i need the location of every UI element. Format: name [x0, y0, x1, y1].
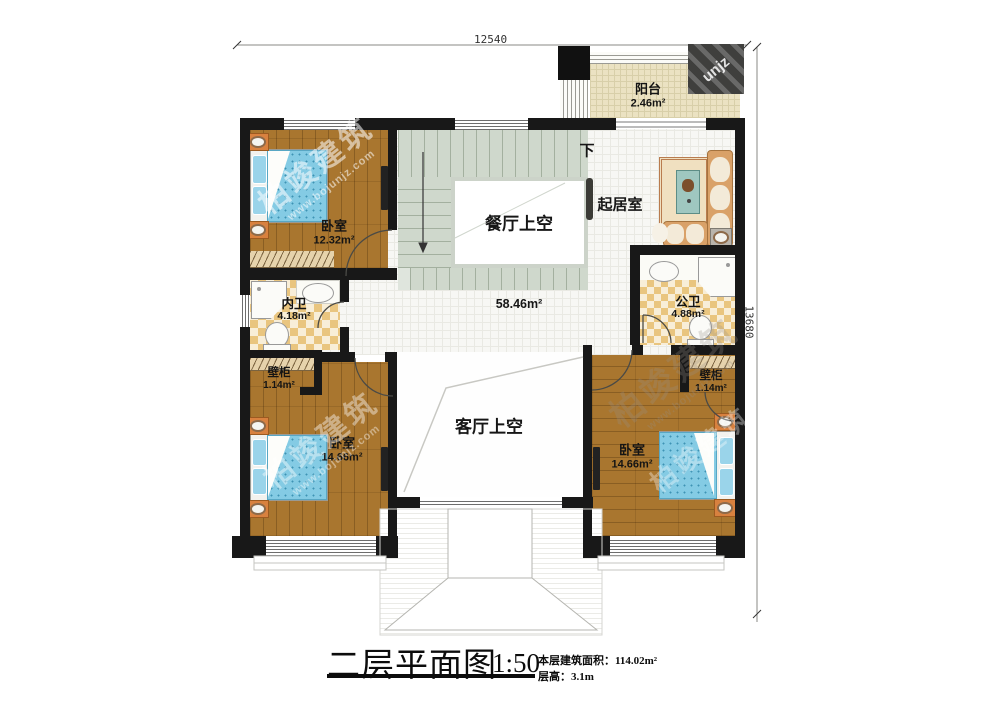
- room-name: 壁柜: [695, 370, 727, 383]
- room-area: 12.32m²: [314, 234, 355, 246]
- title-underline: [327, 674, 535, 678]
- shower-drain-icon: [257, 287, 261, 291]
- nightstand: [247, 500, 269, 518]
- wall-segment: [300, 387, 322, 395]
- balcony-railing-left: [560, 80, 588, 118]
- pillow: [719, 437, 734, 465]
- wall-segment: [240, 327, 250, 558]
- nightstand: [247, 133, 269, 151]
- lamp-icon: [250, 224, 266, 236]
- window: [420, 499, 562, 506]
- floor-height-value: 3.1m: [571, 671, 594, 683]
- wall-segment: [240, 268, 397, 280]
- sofa-cushion: [686, 224, 704, 244]
- balcony-door: [616, 122, 706, 127]
- wall-segment: [632, 345, 643, 355]
- sofa-cushion: [710, 157, 730, 182]
- balcony-railing-top: [590, 52, 690, 64]
- coffee-table: [676, 170, 700, 214]
- tv-icon: [381, 166, 388, 210]
- porch-roof-hatch: [380, 509, 602, 635]
- floor-height-stat: 层高：3.1m: [538, 668, 594, 684]
- room-label-closet-right: 壁柜 1.14m²: [695, 370, 727, 394]
- room-label-bedroom-bottom-right: 卧室 14.66m²: [612, 444, 653, 471]
- table-decor: [682, 179, 694, 192]
- pillow: [252, 186, 267, 215]
- window: [284, 118, 355, 130]
- label-living-void: 客厅上空: [455, 413, 523, 438]
- window: [455, 118, 528, 130]
- wall-segment: [583, 345, 592, 558]
- room-name: 卧室: [612, 444, 653, 459]
- window: [610, 538, 716, 556]
- room-name: 壁柜: [263, 367, 295, 380]
- lamp-icon: [713, 231, 729, 244]
- site-logo-watermark: unjz: [688, 44, 744, 94]
- decor-screen: [586, 178, 593, 220]
- wall-segment: [232, 536, 266, 558]
- wall-segment: [388, 352, 397, 558]
- stairs-top-flight: [398, 130, 588, 177]
- wall-segment: [630, 245, 745, 255]
- tv-icon: [593, 447, 600, 490]
- room-area: 14.66m²: [612, 458, 653, 470]
- sofa-cushion: [710, 185, 730, 210]
- room-area: 2.46m²: [631, 97, 666, 109]
- label-sitting-room: 起居室: [597, 194, 642, 215]
- nightstand: [714, 413, 736, 431]
- wardrobe: [250, 251, 334, 268]
- pillow: [252, 155, 267, 184]
- floor-plan-canvas: 12540 13680 阳台 2.46m² 卧室 12.32m² 内卫 4.18…: [0, 0, 1000, 706]
- pillow: [719, 468, 734, 496]
- lamp-icon: [250, 503, 266, 515]
- lamp-icon: [717, 416, 733, 428]
- throw-pillow: [652, 223, 668, 243]
- plan-title: 二层平面图: [327, 638, 497, 686]
- sink-icon: [649, 261, 679, 282]
- sofa-cushion: [666, 224, 684, 244]
- wall-segment: [240, 350, 322, 358]
- room-area: 1.14m²: [263, 380, 295, 391]
- floor-area-value: 114.02m²: [615, 655, 657, 667]
- wall-segment: [680, 355, 689, 392]
- wall-segment: [388, 118, 397, 230]
- label-open-area: 58.46m²: [496, 297, 543, 311]
- room-label-public-bathroom: 公卫 4.88m²: [671, 295, 704, 321]
- room-name: 卧室: [322, 437, 363, 452]
- wall-segment: [340, 280, 349, 302]
- wall-segment: [355, 118, 455, 130]
- floor-height-label: 层高：: [538, 671, 571, 683]
- pillow: [252, 468, 267, 495]
- room-label-inner-bathroom: 内卫 4.18m²: [277, 297, 310, 323]
- room-area: 1.14m²: [695, 383, 727, 394]
- room-label-bedroom-top-left: 卧室 12.32m²: [314, 220, 355, 247]
- label-dining-void: 餐厅上空: [485, 210, 553, 235]
- room-label-balcony: 阳台 2.46m²: [631, 83, 666, 110]
- room-name: 卧室: [314, 220, 355, 235]
- closet-right-rail: [690, 356, 737, 369]
- table-decor-dot: [687, 199, 691, 203]
- wall-segment: [716, 536, 745, 558]
- room-name: 公卫: [671, 295, 704, 309]
- shower-drain-icon: [726, 263, 730, 267]
- lamp-icon: [717, 502, 733, 514]
- nightstand: [714, 499, 736, 517]
- window: [266, 538, 376, 556]
- wall-segment: [671, 345, 745, 355]
- column: [558, 46, 590, 80]
- lamp-icon: [250, 420, 266, 432]
- lamp-icon: [250, 136, 266, 148]
- dimension-right: 13680: [743, 305, 756, 338]
- wall-segment: [630, 245, 640, 345]
- stairs-left-flight: [398, 177, 451, 268]
- nightstand: [247, 417, 269, 435]
- room-label-closet-left: 壁柜 1.14m²: [263, 367, 295, 391]
- logo-text: unjz: [699, 53, 733, 85]
- wall-segment: [322, 352, 355, 362]
- room-area: 14.66m²: [322, 451, 363, 463]
- room-name: 内卫: [277, 297, 310, 311]
- pillow: [252, 439, 267, 466]
- window: [240, 295, 250, 327]
- room-area: 4.88m²: [671, 309, 704, 321]
- room-label-bedroom-bottom-left: 卧室 14.66m²: [322, 437, 363, 464]
- floor-area-label: 本层建筑面积：: [538, 655, 615, 667]
- tv-icon: [381, 447, 388, 491]
- stairs-bottom-flight: [410, 268, 588, 290]
- room-name: 阳台: [631, 83, 666, 98]
- dimension-top: 12540: [474, 33, 507, 46]
- stairs-landing: [398, 268, 410, 290]
- room-area: 4.18m²: [277, 311, 310, 323]
- floor-area-stat: 本层建筑面积：114.02m²: [538, 652, 657, 668]
- wall-segment: [528, 118, 616, 130]
- nightstand: [247, 221, 269, 239]
- label-stairs-down: 下: [579, 140, 594, 161]
